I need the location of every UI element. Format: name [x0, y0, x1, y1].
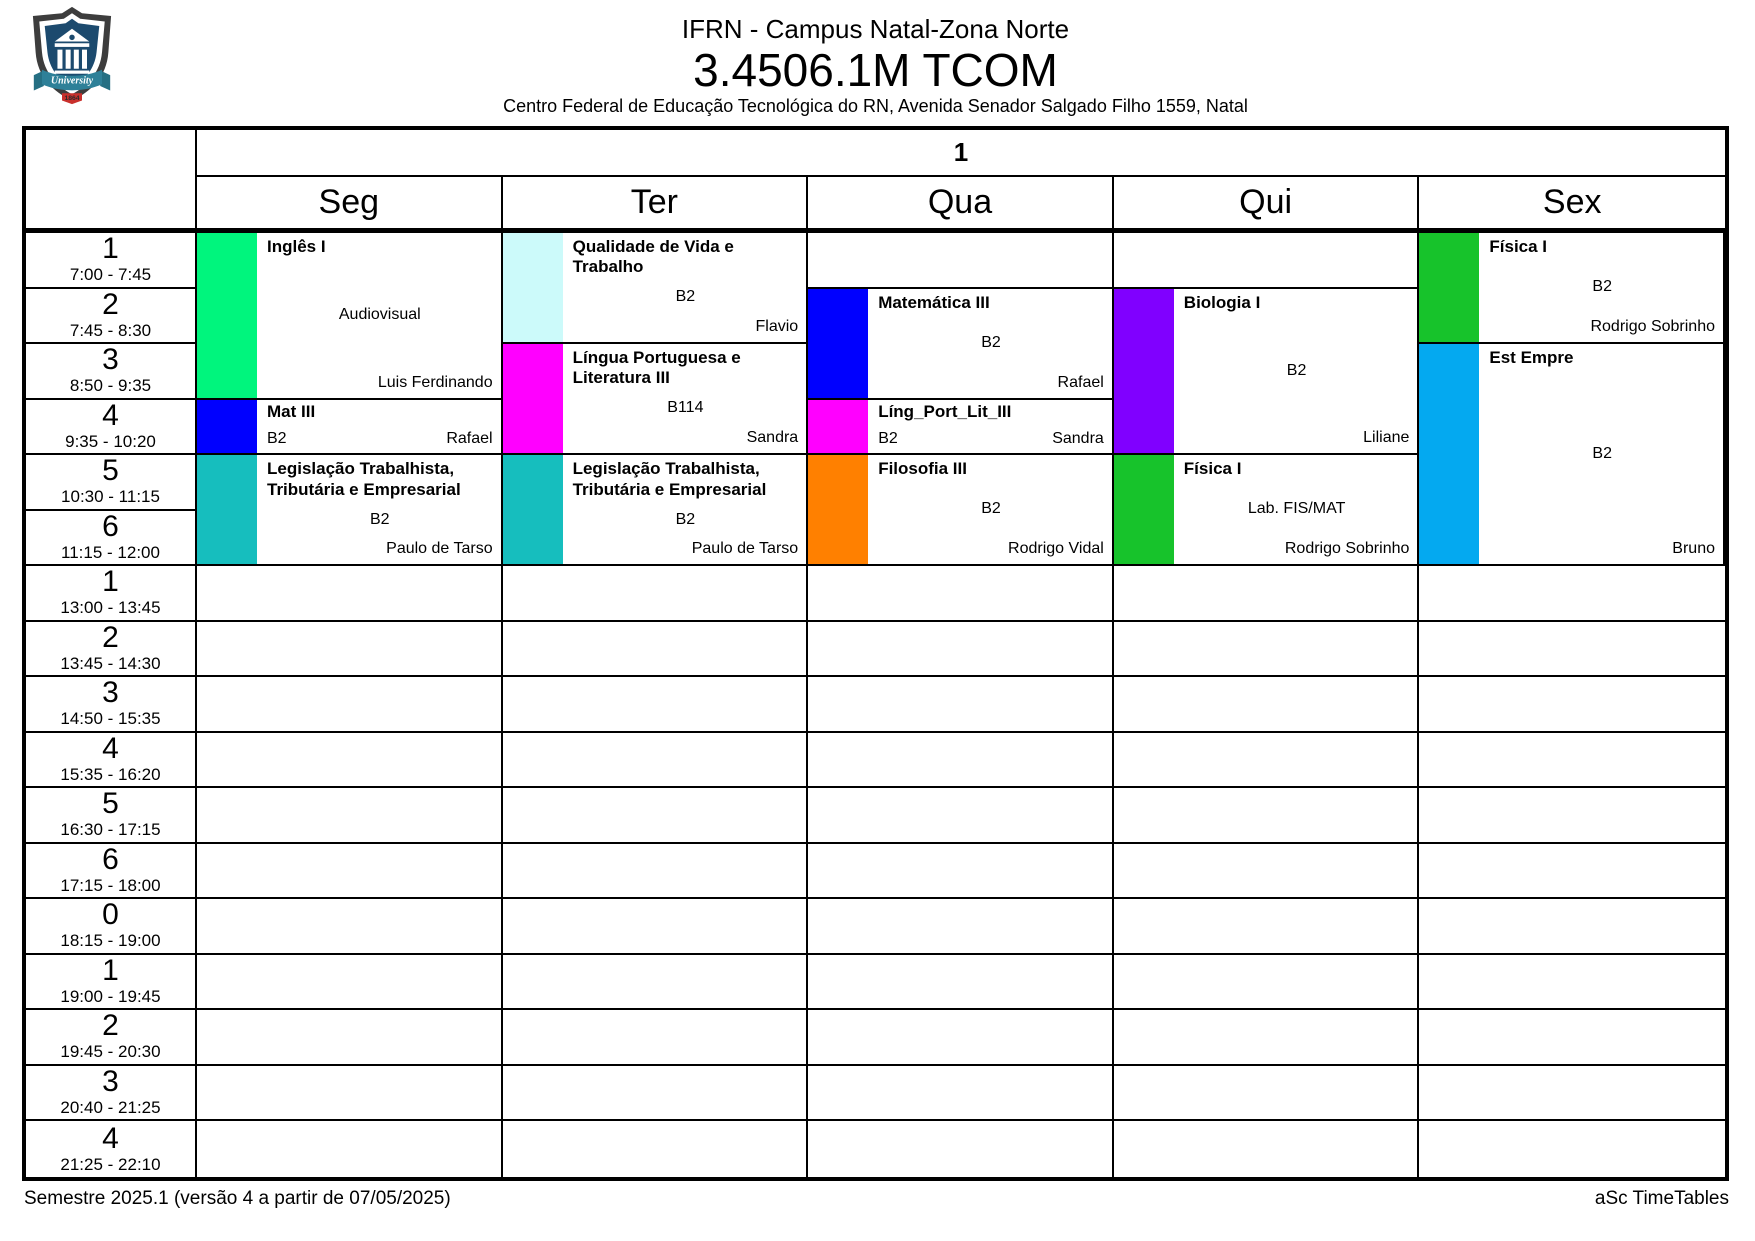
lesson-bottom-row: Luis Ferdinando — [267, 373, 493, 393]
lesson-room: B114 — [667, 398, 703, 418]
period-time: 7:00 - 7:45 — [70, 265, 151, 285]
lesson-color-bar — [1114, 289, 1174, 454]
lesson-teacher: Sandra — [747, 428, 799, 448]
timetable-cell — [197, 677, 503, 733]
period-number: 2 — [102, 623, 119, 653]
timetable-cell — [808, 677, 1114, 733]
timetable-cell — [197, 622, 503, 678]
lesson-block: Biologia IB2Liliane — [1112, 287, 1420, 456]
lesson-title: Língua Portuguesa e Literatura III — [573, 348, 799, 389]
timetable-cell — [503, 1010, 809, 1066]
lesson-room-row: B2 — [573, 278, 799, 317]
lesson-room: B2 — [878, 429, 898, 449]
timetable-cell — [197, 566, 503, 622]
timetable-cell — [1419, 899, 1725, 955]
lesson-content: Est EmpreB2Bruno — [1479, 344, 1723, 564]
timetable-cell — [197, 955, 503, 1011]
timetable-cell — [1114, 733, 1420, 789]
timetable-cell — [197, 1010, 503, 1066]
period-number: 2 — [102, 1011, 119, 1041]
lesson-room: B2 — [267, 429, 287, 449]
day-header-ter: Ter — [503, 177, 809, 233]
period-time: 16:30 - 17:15 — [60, 820, 160, 840]
timetable-cell — [503, 566, 809, 622]
timetable-cell — [1419, 733, 1725, 789]
lesson-bottom-row: Flavio — [573, 317, 799, 337]
lesson-title: Inglês I — [267, 237, 493, 257]
timetable-cell — [1419, 788, 1725, 844]
lesson-color-bar — [808, 455, 868, 564]
day-header-seg: Seg — [197, 177, 503, 233]
lesson-bottom-row: Rodrigo Sobrinho — [1489, 317, 1715, 337]
period-time: 15:35 - 16:20 — [60, 765, 160, 785]
period-cell-2: 38:50 - 9:35 — [26, 344, 197, 400]
lesson-bottom-row: Paulo de Tarso — [573, 539, 799, 559]
period-cell-3: 49:35 - 10:20 — [26, 400, 197, 456]
period-number: 6 — [102, 512, 119, 542]
period-time: 8:50 - 9:35 — [70, 376, 151, 396]
period-number: 3 — [102, 678, 119, 708]
lesson-block: Mat IIIB2Rafael — [195, 398, 503, 456]
timetable-cell — [1114, 677, 1420, 733]
lesson-color-bar — [503, 344, 563, 453]
lesson-bottom-row: B2Sandra — [878, 429, 1104, 449]
timetable-cell — [197, 788, 503, 844]
lesson-color-bar — [197, 400, 257, 454]
timetable-cell — [503, 677, 809, 733]
timetable-cell — [1419, 622, 1725, 678]
timetable-cell — [503, 899, 809, 955]
lesson-block: Física ILab. FIS/MATRodrigo Sobrinho — [1112, 453, 1420, 566]
lesson-block: Legislação Trabalhista, Tributária e Emp… — [501, 453, 809, 566]
lesson-room-row: B2 — [1489, 257, 1715, 317]
lesson-color-bar — [503, 233, 563, 342]
lesson-color-bar — [503, 455, 563, 564]
lesson-teacher: Bruno — [1672, 539, 1715, 559]
lesson-bottom-row: B2Rafael — [267, 429, 493, 449]
timetable-cell — [1419, 844, 1725, 900]
timetable-cell — [503, 1121, 809, 1177]
timetable-cell — [197, 844, 503, 900]
lesson-room: Lab. FIS/MAT — [1248, 499, 1346, 519]
lesson-room: B2 — [981, 333, 1001, 353]
period-cell-9: 415:35 - 16:20 — [26, 733, 197, 789]
timetable-cell — [503, 844, 809, 900]
period-time: 10:30 - 11:15 — [61, 487, 160, 507]
timetable-cell — [808, 899, 1114, 955]
timetable-cell — [197, 1066, 503, 1122]
lesson-bottom-row: Bruno — [1489, 539, 1715, 559]
lesson-room-row: Lab. FIS/MAT — [1184, 480, 1410, 540]
period-number: 3 — [102, 345, 119, 375]
lesson-room-row: B2 — [1184, 313, 1410, 428]
lesson-title: Est Empre — [1489, 348, 1715, 368]
lesson-content: Matemática IIIB2Rafael — [868, 289, 1112, 398]
period-number: 4 — [102, 1124, 119, 1154]
period-time: 19:00 - 19:45 — [60, 987, 160, 1007]
lesson-room-row: B2 — [1489, 368, 1715, 539]
lesson-teacher: Luis Ferdinando — [378, 373, 493, 393]
lesson-content: Biologia IB2Liliane — [1174, 289, 1418, 454]
period-time: 13:00 - 13:45 — [60, 598, 160, 618]
lesson-color-bar — [1114, 455, 1174, 564]
lesson-title: Mat III — [267, 402, 493, 422]
lesson-title: Legislação Trabalhista, Tributária e Emp… — [267, 459, 493, 500]
lesson-room: B2 — [981, 499, 1001, 519]
footer-brand-text: aSc TimeTables — [1595, 1188, 1729, 1210]
period-cell-4: 510:30 - 11:15 — [26, 455, 197, 511]
class-title: 3.4506.1M TCOM — [22, 46, 1729, 94]
lesson-room: B2 — [1592, 444, 1612, 464]
lesson-teacher: Rodrigo Vidal — [1008, 539, 1104, 559]
period-number: 1 — [102, 956, 119, 986]
day-header-sex: Sex — [1419, 177, 1725, 233]
period-cell-11: 617:15 - 18:00 — [26, 844, 197, 900]
lesson-content: Língua Portuguesa e Literatura IIIB114Sa… — [563, 344, 807, 453]
day-header-qui: Qui — [1114, 177, 1420, 233]
lesson-color-bar — [197, 233, 257, 398]
lesson-title: Líng_Port_Lit_III — [878, 402, 1104, 422]
lesson-block: Língua Portuguesa e Literatura IIIB114Sa… — [501, 342, 809, 455]
period-time: 7:45 - 8:30 — [70, 321, 151, 341]
lesson-teacher: Paulo de Tarso — [692, 539, 798, 559]
timetable-cell — [503, 788, 809, 844]
group-header: 1 — [197, 130, 1725, 177]
lesson-bottom-row: Sandra — [573, 428, 799, 448]
lesson-block: Filosofia IIIB2Rodrigo Vidal — [806, 453, 1114, 566]
lesson-block: Inglês IAudiovisualLuis Ferdinando — [195, 231, 503, 400]
period-cell-6: 113:00 - 13:45 — [26, 566, 197, 622]
lesson-bottom-row: Rodrigo Vidal — [878, 539, 1104, 559]
lesson-content: Qualidade de Vida e TrabalhoB2Flavio — [563, 233, 807, 342]
period-time: 20:40 - 21:25 — [60, 1098, 160, 1118]
period-number: 1 — [102, 567, 119, 597]
period-cell-7: 213:45 - 14:30 — [26, 622, 197, 678]
address-line: Centro Federal de Educação Tecnológica d… — [22, 96, 1729, 118]
lesson-block: Física IB2Rodrigo Sobrinho — [1417, 231, 1725, 344]
lesson-room-row: B2 — [878, 480, 1104, 540]
period-time: 14:50 - 15:35 — [60, 709, 160, 729]
timetable-cell — [1114, 566, 1420, 622]
lesson-color-bar — [1419, 233, 1479, 342]
lesson-color-bar — [1419, 344, 1479, 564]
period-cell-0: 17:00 - 7:45 — [26, 233, 197, 289]
timetable-cell — [1114, 1121, 1420, 1177]
timetable-cell — [503, 955, 809, 1011]
period-number: 4 — [102, 734, 119, 764]
lesson-bottom-row: Rodrigo Sobrinho — [1184, 539, 1410, 559]
lesson-title: Física I — [1184, 459, 1410, 479]
lesson-room-row: B114 — [573, 389, 799, 428]
timetable-cell — [808, 955, 1114, 1011]
period-cell-16: 421:25 - 22:10 — [26, 1121, 197, 1177]
institution-title: IFRN - Campus Natal-Zona Norte — [22, 14, 1729, 45]
timetable-cell — [808, 566, 1114, 622]
period-cell-12: 018:15 - 19:00 — [26, 899, 197, 955]
lesson-title: Matemática III — [878, 293, 1104, 313]
lesson-block: Qualidade de Vida e TrabalhoB2Flavio — [501, 231, 809, 344]
period-cell-8: 314:50 - 15:35 — [26, 677, 197, 733]
lesson-block: Est EmpreB2Bruno — [1417, 342, 1725, 566]
lesson-room: B2 — [676, 510, 696, 530]
timetable-cell — [503, 1066, 809, 1122]
timetable-cell — [197, 733, 503, 789]
period-number: 6 — [102, 845, 119, 875]
page-header: IFRN - Campus Natal-Zona Norte 3.4506.1M… — [22, 4, 1729, 118]
lesson-title: Qualidade de Vida e Trabalho — [573, 237, 799, 278]
lesson-block: Líng_Port_Lit_IIIB2Sandra — [806, 398, 1114, 456]
lesson-room: B2 — [1592, 277, 1612, 297]
timetable-grid: 1 SegTerQuaQuiSex17:00 - 7:4527:45 - 8:3… — [22, 126, 1729, 1181]
timetable-cell — [197, 899, 503, 955]
lesson-room-row: Audiovisual — [267, 257, 493, 372]
lesson-content: Filosofia IIIB2Rodrigo Vidal — [868, 455, 1112, 564]
lesson-content: Inglês IAudiovisualLuis Ferdinando — [257, 233, 501, 398]
lesson-room-row: B2 — [878, 313, 1104, 373]
period-time: 9:35 - 10:20 — [65, 432, 156, 452]
timetable-cell — [1114, 1066, 1420, 1122]
timetable-cell — [1114, 233, 1420, 289]
lesson-teacher: Rafael — [1058, 373, 1104, 393]
period-number: 5 — [102, 456, 119, 486]
lesson-bottom-row: Rafael — [878, 373, 1104, 393]
period-time: 13:45 - 14:30 — [60, 654, 160, 674]
day-header-qua: Qua — [808, 177, 1114, 233]
period-cell-14: 219:45 - 20:30 — [26, 1010, 197, 1066]
lesson-color-bar — [808, 400, 868, 454]
timetable-cell — [503, 733, 809, 789]
timetable-cell — [808, 622, 1114, 678]
lesson-content: Legislação Trabalhista, Tributária e Emp… — [563, 455, 807, 564]
lesson-block: Matemática IIIB2Rafael — [806, 287, 1114, 400]
lesson-title: Física I — [1489, 237, 1715, 257]
lesson-room: Audiovisual — [339, 305, 421, 325]
period-time: 19:45 - 20:30 — [60, 1042, 160, 1062]
lesson-content: Líng_Port_Lit_IIIB2Sandra — [868, 400, 1112, 454]
timetable-cell — [1114, 788, 1420, 844]
period-number: 0 — [102, 900, 119, 930]
timetable-cell — [1419, 677, 1725, 733]
corner-cell — [26, 130, 197, 233]
lesson-color-bar — [197, 455, 257, 564]
lesson-room: B2 — [1287, 361, 1307, 381]
period-time: 21:25 - 22:10 — [60, 1155, 160, 1175]
lesson-teacher: Rodrigo Sobrinho — [1285, 539, 1410, 559]
timetable-cell — [1114, 899, 1420, 955]
period-time: 17:15 - 18:00 — [60, 876, 160, 896]
lesson-bottom-row: Liliane — [1184, 428, 1410, 448]
lesson-room: B2 — [370, 510, 390, 530]
timetable-cell — [1114, 955, 1420, 1011]
lesson-room-row: B2 — [573, 500, 799, 539]
period-number: 2 — [102, 290, 119, 320]
lesson-content: Física ILab. FIS/MATRodrigo Sobrinho — [1174, 455, 1418, 564]
lesson-content: Legislação Trabalhista, Tributária e Emp… — [257, 455, 501, 564]
timetable-cell — [1114, 1010, 1420, 1066]
period-number: 5 — [102, 789, 119, 819]
timetable-cell — [808, 1066, 1114, 1122]
lesson-bottom-row: Paulo de Tarso — [267, 539, 493, 559]
period-number: 4 — [102, 401, 119, 431]
timetable-cell — [1419, 1010, 1725, 1066]
period-cell-15: 320:40 - 21:25 — [26, 1066, 197, 1122]
lesson-content: Física IB2Rodrigo Sobrinho — [1479, 233, 1723, 342]
lesson-block: Legislação Trabalhista, Tributária e Emp… — [195, 453, 503, 566]
timetable-cell — [808, 1010, 1114, 1066]
lesson-content: Mat IIIB2Rafael — [257, 400, 501, 454]
lesson-title: Filosofia III — [878, 459, 1104, 479]
timetable-cell — [197, 1121, 503, 1177]
period-cell-10: 516:30 - 17:15 — [26, 788, 197, 844]
timetable-cell — [1419, 566, 1725, 622]
timetable-cell — [1114, 622, 1420, 678]
lesson-color-bar — [808, 289, 868, 398]
period-time: 18:15 - 19:00 — [60, 931, 160, 951]
timetable-cell — [503, 622, 809, 678]
period-cell-5: 611:15 - 12:00 — [26, 511, 197, 567]
period-cell-13: 119:00 - 19:45 — [26, 955, 197, 1011]
lesson-teacher: Liliane — [1363, 428, 1409, 448]
footer-version-text: Semestre 2025.1 (versão 4 a partir de 07… — [24, 1188, 451, 1210]
lesson-teacher: Sandra — [1052, 429, 1104, 449]
period-number: 3 — [102, 1067, 119, 1097]
timetable-cell — [808, 844, 1114, 900]
lesson-room: B2 — [676, 287, 696, 307]
period-number: 1 — [102, 234, 119, 264]
timetable-cell — [808, 1121, 1114, 1177]
lesson-teacher: Flavio — [756, 317, 799, 337]
timetable-cell — [1114, 844, 1420, 900]
timetable-cell — [808, 788, 1114, 844]
timetable-cell — [1419, 955, 1725, 1011]
timetable-cell — [1419, 1121, 1725, 1177]
lesson-title: Legislação Trabalhista, Tributária e Emp… — [573, 459, 799, 500]
lesson-teacher: Rodrigo Sobrinho — [1590, 317, 1715, 337]
lesson-teacher: Rafael — [446, 429, 492, 449]
lesson-title: Biologia I — [1184, 293, 1410, 313]
timetable-cell — [808, 733, 1114, 789]
lesson-teacher: Paulo de Tarso — [386, 539, 492, 559]
timetable-cell — [808, 233, 1114, 289]
timetable-cell — [1419, 1066, 1725, 1122]
period-cell-1: 27:45 - 8:30 — [26, 289, 197, 345]
period-time: 11:15 - 12:00 — [61, 543, 160, 563]
lesson-room-row: B2 — [267, 500, 493, 539]
